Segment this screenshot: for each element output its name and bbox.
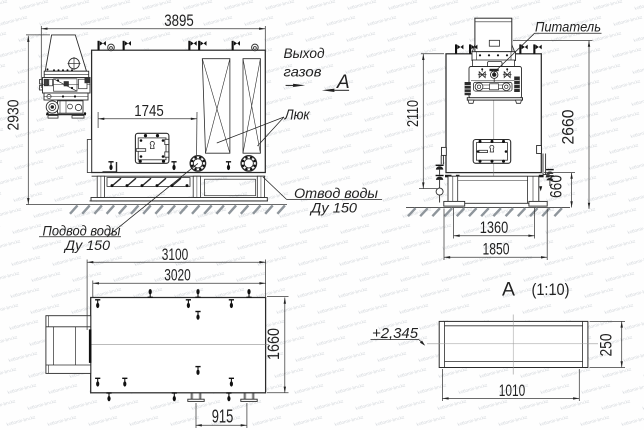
svg-text:3020: 3020: [164, 267, 191, 285]
svg-text:660: 660: [548, 175, 566, 198]
svg-text:(1:10): (1:10): [532, 280, 570, 299]
svg-text:Ду 150: Ду 150: [63, 237, 110, 253]
svg-text:1660: 1660: [264, 328, 283, 360]
svg-text:1010: 1010: [499, 382, 526, 400]
svg-text:Ду 150: Ду 150: [309, 200, 357, 216]
svg-text:А: А: [502, 279, 515, 301]
svg-text:Питатель: Питатель: [535, 18, 601, 34]
svg-text:2110: 2110: [405, 100, 422, 127]
svg-text:1745: 1745: [134, 103, 164, 120]
svg-text:250: 250: [598, 334, 616, 357]
svg-text:Выход: Выход: [284, 46, 325, 61]
svg-text:915: 915: [212, 407, 234, 427]
svg-text:2930: 2930: [6, 99, 23, 130]
svg-text:3100: 3100: [162, 246, 189, 264]
svg-text:1360: 1360: [480, 219, 509, 237]
svg-text:газов: газов: [284, 64, 322, 79]
svg-text:3895: 3895: [164, 12, 194, 30]
svg-text:Люк: Люк: [284, 107, 311, 123]
svg-text:1850: 1850: [483, 241, 510, 259]
svg-text:2660: 2660: [560, 110, 578, 145]
